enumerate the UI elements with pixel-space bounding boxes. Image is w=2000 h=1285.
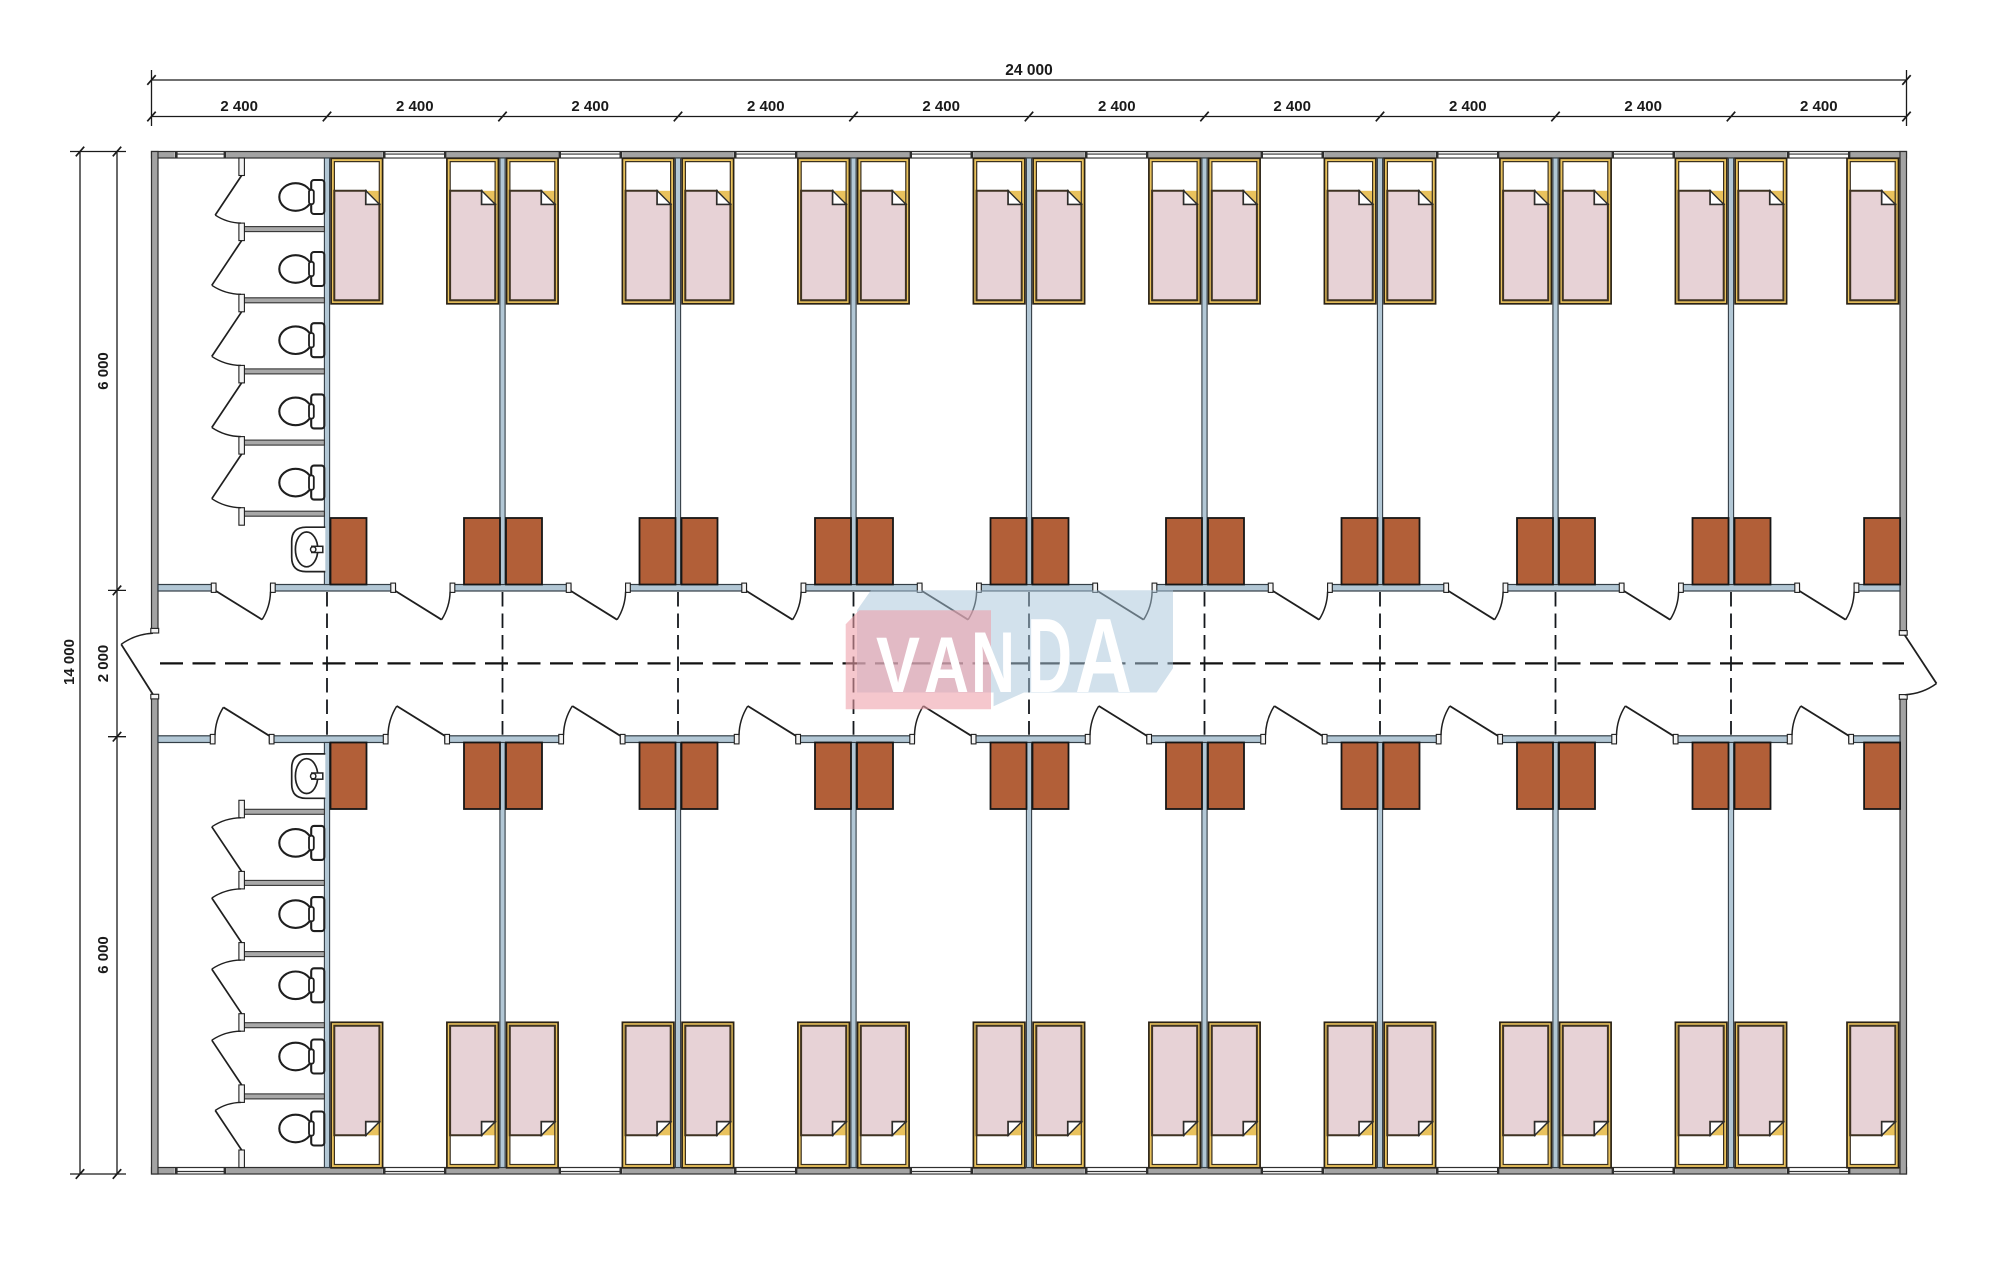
svg-text:2 400: 2 400 bbox=[1624, 98, 1662, 115]
svg-text:2 400: 2 400 bbox=[747, 98, 785, 115]
svg-text:2 400: 2 400 bbox=[571, 98, 609, 115]
svg-text:N: N bbox=[971, 615, 1015, 711]
svg-text:2 400: 2 400 bbox=[220, 98, 258, 115]
svg-text:24 000: 24 000 bbox=[1005, 62, 1052, 79]
svg-text:2 400: 2 400 bbox=[922, 98, 960, 115]
svg-text:2 000: 2 000 bbox=[95, 645, 112, 683]
svg-text:V: V bbox=[876, 620, 920, 709]
svg-text:14 000: 14 000 bbox=[61, 639, 78, 685]
svg-text:2 400: 2 400 bbox=[1273, 98, 1311, 115]
svg-text:D: D bbox=[1027, 597, 1072, 715]
svg-text:2 400: 2 400 bbox=[1098, 98, 1136, 115]
svg-text:A: A bbox=[1075, 597, 1132, 715]
svg-text:2 400: 2 400 bbox=[1800, 98, 1838, 115]
svg-text:6 000: 6 000 bbox=[95, 936, 112, 974]
svg-text:2 400: 2 400 bbox=[396, 98, 434, 115]
svg-text:2 400: 2 400 bbox=[1449, 98, 1487, 115]
svg-text:6 000: 6 000 bbox=[95, 352, 112, 390]
svg-text:A: A bbox=[924, 620, 969, 709]
